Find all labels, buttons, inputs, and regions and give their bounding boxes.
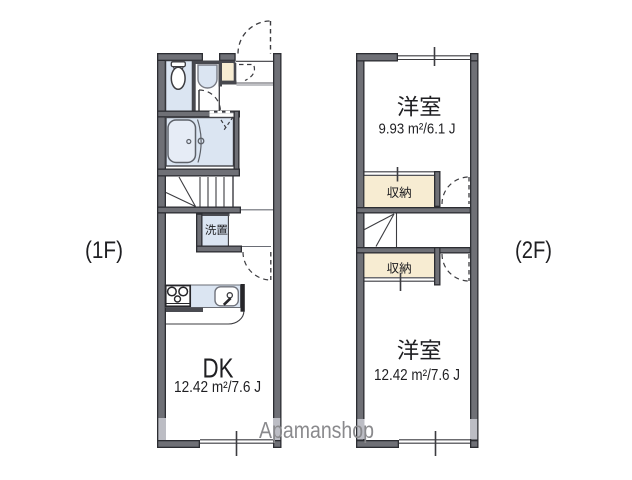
svg-text:9.93 m²/6.1 J: 9.93 m²/6.1 J <box>379 121 456 138</box>
svg-text:(2F): (2F) <box>515 237 552 264</box>
svg-text:(1F): (1F) <box>85 237 123 264</box>
svg-text:Apamanshop: Apamanshop <box>259 417 374 443</box>
svg-text:12.42 m²/7.6 J: 12.42 m²/7.6 J <box>174 379 261 396</box>
svg-text:12.42 m²/7.6 J: 12.42 m²/7.6 J <box>374 367 460 384</box>
